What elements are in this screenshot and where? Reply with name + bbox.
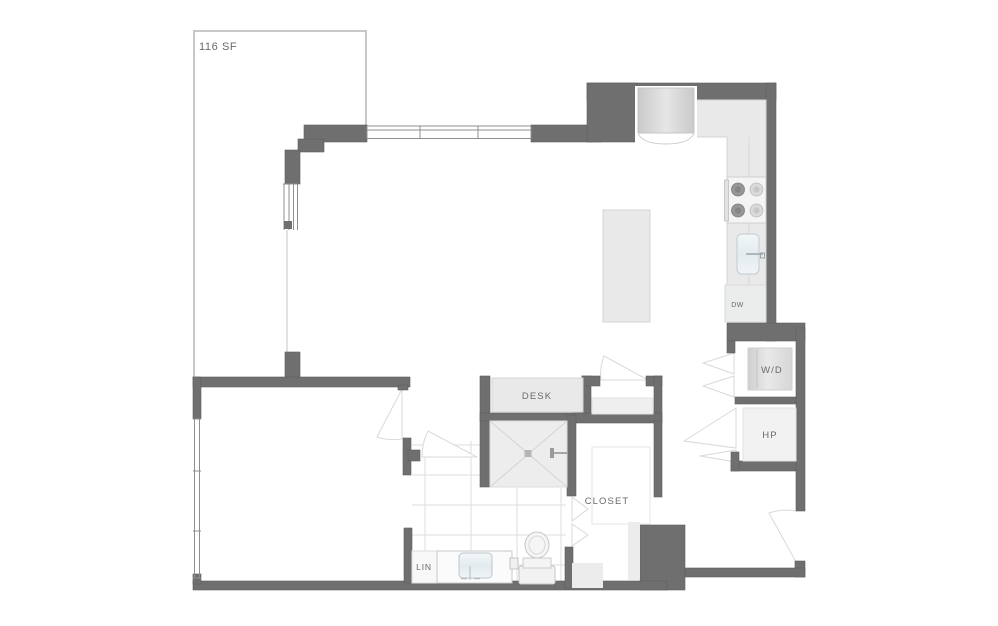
washer-dryer-doors [703,353,734,397]
stove [725,177,767,223]
floorplan-svg: 116 SF [0,0,998,626]
closet-rod-shelf [592,447,650,524]
coat-closet-shelf [592,398,653,414]
window-post [284,221,292,229]
dishwasher-label: DW [731,302,743,309]
shower-drain [525,450,532,457]
dishwasher-area: DW [725,285,766,322]
balcony-outline [194,31,366,378]
north-window [367,126,531,139]
kitchen-island [603,210,650,322]
vanity-sink [459,553,492,578]
bedroom-window [193,419,201,578]
heat-pump-label: HP [762,430,777,441]
desk-label: DESK [522,391,552,402]
heat-pump: HP [743,408,796,461]
refrigerator [635,86,697,144]
desk: DESK [492,378,583,412]
bedroom-door-arc [377,389,402,440]
toilet [519,532,555,584]
heat-pump-doors [684,408,736,462]
tp-holder [510,558,518,569]
linen-closet: LIN [412,551,437,583]
bathroom-door-arc [422,431,477,457]
entry-door-arc [769,510,796,562]
balcony-area-label: 116 SF [199,41,237,53]
floorplan-canvas: 116 SF [0,0,998,626]
vanity [437,551,512,583]
shower [490,421,567,487]
coat-closet-door-arc [601,356,648,380]
closet-shelf-e [628,522,640,580]
washer-dryer-label: W/D [761,365,783,376]
washer-dryer: W/D [748,348,792,390]
closet-shelf-sw [572,563,603,588]
walkin-closet: CLOSET [572,447,650,588]
walls [193,83,805,590]
closet-label: CLOSET [585,496,630,507]
oven-handle [725,180,729,221]
linen-label: LIN [416,562,432,572]
west-window [283,184,298,230]
